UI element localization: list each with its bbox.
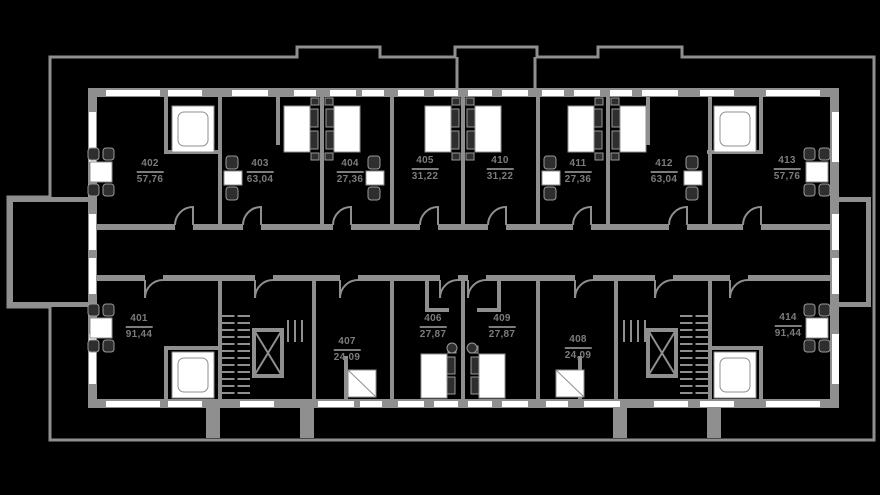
apartment-number: 403 [247,158,274,173]
apartment-number: 412 [651,158,678,173]
apartment-label-408[interactable]: 408 24,09 [565,334,592,361]
apartment-label-413[interactable]: 413 57,76 [774,155,801,182]
apartment-label-412[interactable]: 412 63,04 [651,158,678,185]
apartment-label-405[interactable]: 405 31,22 [412,155,439,182]
apartment-area: 27,87 [420,328,447,341]
apartment-number: 402 [137,158,164,173]
shower-icon [348,370,584,397]
elevator-right-icon [648,330,676,376]
apartment-number: 405 [412,155,439,170]
staircase-left-icon [222,312,308,396]
apartment-number: 401 [126,313,153,328]
apartment-label-406[interactable]: 406 27,87 [420,313,447,340]
apartment-number: 414 [775,312,802,327]
apartment-label-411[interactable]: 411 27,36 [565,158,592,185]
staircase-right-icon [622,312,708,396]
apartment-number: 410 [487,155,514,170]
apartment-area: 27,36 [337,173,364,186]
apartment-number: 406 [420,313,447,328]
apartment-area: 24,09 [334,351,361,364]
apartment-label-402[interactable]: 402 57,76 [137,158,164,185]
apartment-label-403[interactable]: 403 63,04 [247,158,274,185]
apartment-area: 91,44 [126,328,153,341]
apartment-label-407[interactable]: 407 24,09 [334,336,361,363]
apartment-number: 409 [489,313,516,328]
apartment-number: 411 [565,158,592,173]
apartment-label-401[interactable]: 401 91,44 [126,313,153,340]
apartment-area: 31,22 [487,170,514,183]
apartment-number: 404 [337,158,364,173]
apartment-number: 408 [565,334,592,349]
apartment-area: 57,76 [774,170,801,183]
apartment-area: 24,09 [565,349,592,362]
entrance-porches [206,408,721,438]
apartment-area: 27,87 [489,328,516,341]
apartment-number: 413 [774,155,801,170]
apartment-area: 57,76 [137,173,164,186]
apartment-label-414[interactable]: 414 91,44 [775,312,802,339]
apartment-label-409[interactable]: 409 27,87 [489,313,516,340]
apartment-area: 91,44 [775,327,802,340]
balcony-left [8,197,88,307]
apartment-area: 31,22 [412,170,439,183]
dining-table-icon [88,148,830,352]
balcony-right [839,197,871,307]
apartment-area: 63,04 [247,173,274,186]
door-arcs [145,207,761,298]
apartment-area: 27,36 [565,173,592,186]
elevator-left-icon [254,330,282,376]
floor-plan: 401 91,44 402 57,76 403 63,04 404 27,36 … [0,0,880,495]
apartment-area: 63,04 [651,173,678,186]
floor-plan-svg [0,0,880,495]
apartment-number: 407 [334,336,361,351]
apartment-label-410[interactable]: 410 31,22 [487,155,514,182]
apartment-label-404[interactable]: 404 27,36 [337,158,364,185]
